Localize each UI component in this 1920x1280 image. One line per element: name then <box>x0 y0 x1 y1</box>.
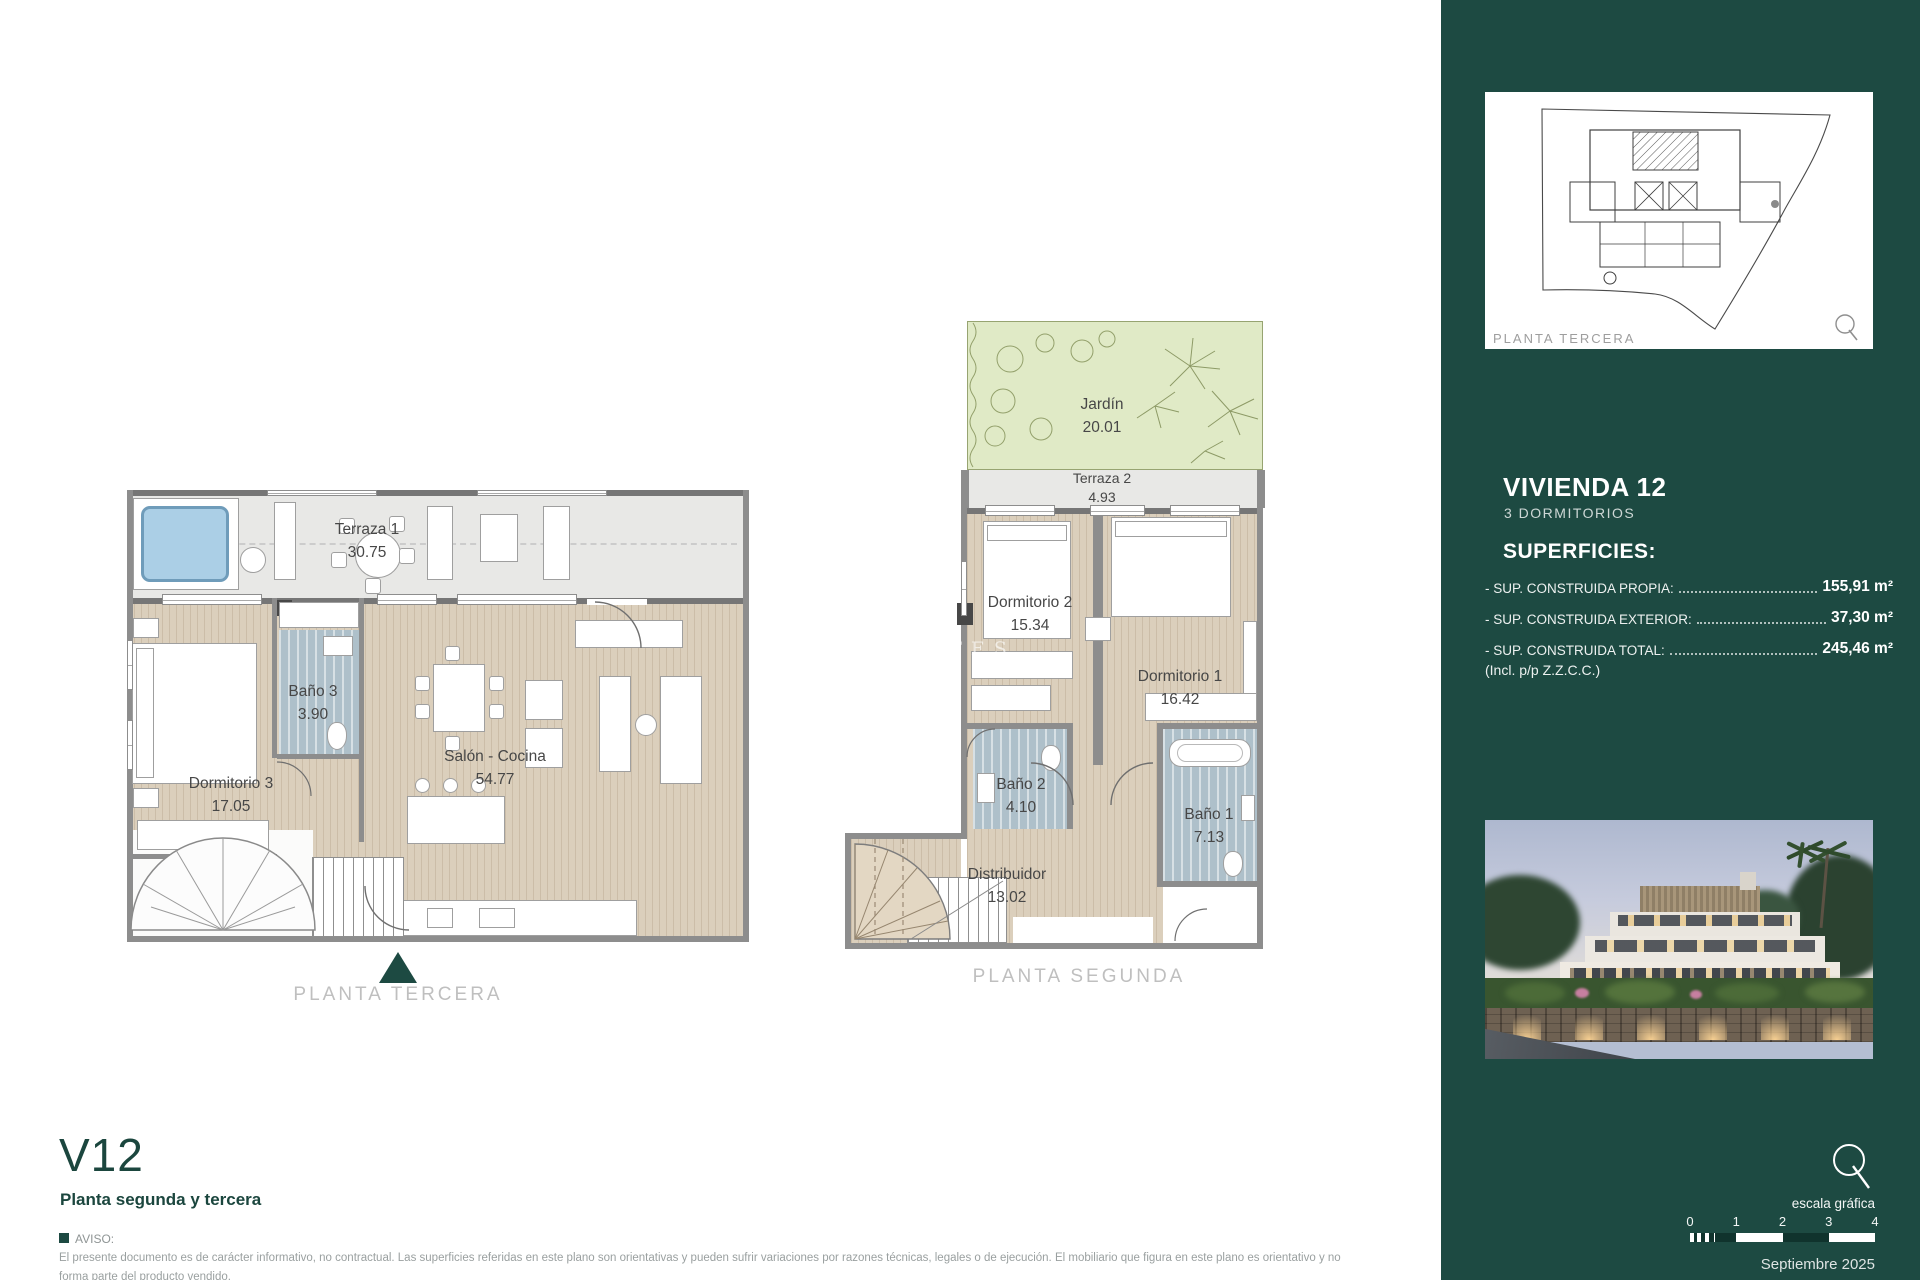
tv-cabinet <box>575 620 683 648</box>
room-area: 17.05 <box>189 795 273 818</box>
bath-east-wall <box>359 598 364 758</box>
tick: 3 <box>1825 1214 1832 1229</box>
room-area: 4.10 <box>996 796 1045 819</box>
straight-stair <box>312 857 404 937</box>
bed-pillows <box>987 525 1067 541</box>
terrace-chair <box>399 548 415 564</box>
nightstand <box>133 618 159 638</box>
partition-wall <box>359 758 364 842</box>
north-triangle-marker <box>379 952 417 983</box>
terrace-armchair <box>480 514 518 562</box>
room-area: 15.34 <box>988 614 1072 637</box>
palm-fronds <box>1795 842 1855 864</box>
bathroom-sink <box>323 636 353 656</box>
dining-chair <box>489 676 504 691</box>
dining-chair <box>415 676 430 691</box>
window <box>1170 505 1240 516</box>
cooktop <box>479 908 515 928</box>
disclaimer: El presente documento es de carácter inf… <box>59 1249 1369 1280</box>
wardrobe <box>137 820 269 850</box>
terrace-wall-stub <box>961 470 969 508</box>
toilet <box>1223 851 1243 877</box>
room-label-terraza-2: Terraza 2 4.93 <box>1073 469 1131 507</box>
kitchen-island <box>407 796 505 844</box>
bath-west-wall <box>272 598 277 758</box>
floorplan-planta-segunda: Jardín 20.01 Terraza 2 4.93 Dormitorio 2… <box>845 321 1267 950</box>
disclaimer-line-2: forma parte del producto vendido. <box>59 1268 1369 1280</box>
room-name: Dormitorio 3 <box>189 772 273 795</box>
dining-table <box>433 664 485 732</box>
window <box>127 640 133 690</box>
bed-pillows <box>136 648 154 778</box>
west-wall <box>961 508 967 833</box>
room-name: Dormitorio 2 <box>988 591 1072 614</box>
superficie-label: - SUP. CONSTRUIDA TOTAL: <box>1485 643 1665 658</box>
dotted-leader <box>1670 653 1818 655</box>
toilet <box>1041 745 1061 771</box>
room-label-distribuidor: Distribuidor 13.02 <box>968 863 1046 910</box>
room-area: 30.75 <box>335 541 400 564</box>
dotted-leader <box>1679 591 1818 593</box>
armchair <box>525 680 563 720</box>
bathtub-basin <box>1177 744 1243 762</box>
render-glazing <box>1595 940 1815 952</box>
room-label-dormitorio-1: Dormitorio 1 16.42 <box>1138 665 1222 712</box>
room-area: 16.42 <box>1138 688 1222 711</box>
wall-shelf <box>1085 617 1111 641</box>
building-render-image <box>1485 820 1873 1059</box>
render-level <box>1610 912 1800 936</box>
closet <box>279 602 359 628</box>
window <box>961 561 967 616</box>
sidebar-panel: PLANTA TERCERA VIVIENDA 12 3 DORMITORIOS… <box>1441 0 1920 1280</box>
room-name: Distribuidor <box>968 863 1046 886</box>
floorplan-planta-tercera: Terraza 1 30.75 Dormitorio 3 17.05 Baño … <box>127 490 749 955</box>
unit-code: V12 <box>59 1128 144 1182</box>
terrace-wall-stub <box>1257 470 1265 508</box>
superficies-row: - SUP. CONSTRUIDA PROPIA: 155,91 m² <box>1485 578 1893 596</box>
bath-south-wall <box>277 754 364 759</box>
tick: 4 <box>1871 1214 1878 1229</box>
terrace-chair <box>365 578 381 594</box>
tick: 0 <box>1686 1214 1693 1229</box>
dotted-leader <box>1697 622 1826 624</box>
plan-sheet: Terraza 1 30.75 Dormitorio 3 17.05 Baño … <box>0 0 1920 1280</box>
tick: 1 <box>1733 1214 1740 1229</box>
terrace-north-wall <box>127 490 749 496</box>
east-wall <box>1257 508 1263 943</box>
room-area: 7.13 <box>1184 826 1233 849</box>
sun-lounger <box>274 502 296 580</box>
terrace-sofa <box>427 506 453 580</box>
sofa <box>599 676 631 772</box>
q-logo-icon <box>1827 1140 1875 1194</box>
room-label-jardin: Jardín 20.01 <box>1080 393 1123 440</box>
terrace-door-opening <box>587 599 647 605</box>
room-area: 3.90 <box>288 703 337 726</box>
disclaimer-line-1: El presente documento es de carácter inf… <box>59 1249 1369 1268</box>
room-label-bano-3: Baño 3 3.90 <box>288 680 337 727</box>
window <box>457 594 577 605</box>
bathroom-sink <box>1241 795 1255 821</box>
room-name: Terraza 2 <box>1073 469 1131 488</box>
window <box>377 594 437 605</box>
issue-date: Septiembre 2025 <box>1761 1256 1875 1273</box>
room-label-bano-2: Baño 2 4.10 <box>996 773 1045 820</box>
window <box>162 594 262 605</box>
room-name: Jardín <box>1080 393 1123 416</box>
siteplan-thumbnail: PLANTA TERCERA <box>1485 92 1873 349</box>
vivienda-subtitle: 3 DORMITORIOS <box>1504 505 1635 521</box>
room-name: Dormitorio 1 <box>1138 665 1222 688</box>
window <box>127 720 133 770</box>
bath1-west-wall <box>1157 729 1163 887</box>
room-name: Salón - Cocina <box>444 745 546 768</box>
thumbnail-caption: PLANTA TERCERA <box>1493 331 1635 346</box>
entry-landing <box>1013 917 1153 943</box>
room-label-dormitorio-3: Dormitorio 3 17.05 <box>189 772 273 819</box>
window <box>985 505 1055 516</box>
room-label-dormitorio-2: Dormitorio 2 15.34 <box>988 591 1072 638</box>
pouf <box>240 547 266 573</box>
dorm3-south-wall <box>127 854 277 859</box>
superficie-label: - SUP. CONSTRUIDA PROPIA: <box>1485 581 1674 596</box>
kitchen-sink <box>427 908 453 928</box>
bed-pillows <box>1115 521 1227 537</box>
room-area: 54.77 <box>444 768 546 791</box>
room-name: Baño 2 <box>996 773 1045 796</box>
terrace-window <box>477 490 607 496</box>
coffee-table <box>635 714 657 736</box>
aviso-bullet-icon <box>59 1233 69 1243</box>
vivienda-title: VIVIENDA 12 <box>1503 472 1666 503</box>
nightstand <box>133 788 159 808</box>
render-glazing <box>1618 915 1792 926</box>
siteplan-sketch: PLANTA TERCERA <box>1485 92 1873 349</box>
unit-subtitle: Planta segunda y tercera <box>60 1190 261 1210</box>
caption-planta-tercera: PLANTA TERCERA <box>293 984 502 1006</box>
stool <box>415 778 430 793</box>
dining-chair <box>415 704 430 719</box>
superficie-value: 37,30 m² <box>1831 609 1893 627</box>
dining-chair <box>445 646 460 661</box>
room-area: 4.93 <box>1073 488 1131 507</box>
terrace-east-wall <box>743 490 749 598</box>
wardrobe <box>971 651 1073 679</box>
tick: 2 <box>1779 1214 1786 1229</box>
scale-bar <box>1690 1233 1875 1242</box>
superficies-row: - SUP. CONSTRUIDA TOTAL: 245,46 m² <box>1485 640 1893 658</box>
bath2-east-wall <box>1067 723 1073 829</box>
room-area: 13.02 <box>968 886 1046 909</box>
room-label-salon-cocina: Salón - Cocina 54.77 <box>444 745 546 792</box>
dresser <box>971 685 1051 711</box>
bath1-north-wall <box>1157 723 1257 729</box>
room-name: Baño 1 <box>1184 803 1233 826</box>
superficie-label: - SUP. CONSTRUIDA EXTERIOR: <box>1485 612 1692 627</box>
render-level <box>1585 936 1825 962</box>
terrace-sofa <box>543 506 570 580</box>
caption-planta-segunda: PLANTA SEGUNDA <box>973 966 1186 988</box>
superficies-heading: SUPERFICIES: <box>1503 540 1656 564</box>
plunge-pool <box>141 506 229 582</box>
bath1-south-wall <box>1157 881 1257 887</box>
room-name: Terraza 1 <box>335 518 400 541</box>
superficies-row: - SUP. CONSTRUIDA EXTERIOR: 37,30 m² <box>1485 609 1893 627</box>
south-wall <box>845 943 1263 949</box>
superficie-value: 245,46 m² <box>1822 640 1893 658</box>
scale-ticks: 0 1 2 3 4 <box>1690 1214 1875 1230</box>
east-wall <box>743 598 749 942</box>
terrace-window <box>267 490 377 496</box>
superficie-value: 155,91 m² <box>1822 578 1893 596</box>
scale-label: escala gráfica <box>1792 1196 1875 1211</box>
aviso-heading: AVISO: <box>59 1232 114 1246</box>
room-area: 20.01 <box>1080 416 1123 439</box>
room-name: Baño 3 <box>288 680 337 703</box>
render-chimney <box>1740 872 1756 890</box>
sofa-chaise <box>660 676 702 784</box>
bath1-lobby <box>1163 887 1257 943</box>
bathroom-sink <box>977 773 995 803</box>
bath2-north-wall <box>967 723 1073 729</box>
superficies-table: - SUP. CONSTRUIDA PROPIA: 155,91 m² - SU… <box>1485 578 1893 671</box>
superficies-note: (Incl. p/p Z.Z.C.C.) <box>1485 662 1600 678</box>
room-label-terraza-1: Terraza 1 30.75 <box>335 518 400 565</box>
south-wall <box>127 936 749 942</box>
aviso-label: AVISO: <box>75 1232 114 1246</box>
dining-chair <box>489 704 504 719</box>
room-label-bano-1: Baño 1 7.13 <box>1184 803 1233 850</box>
render-wall-lights <box>1485 1006 1873 1042</box>
